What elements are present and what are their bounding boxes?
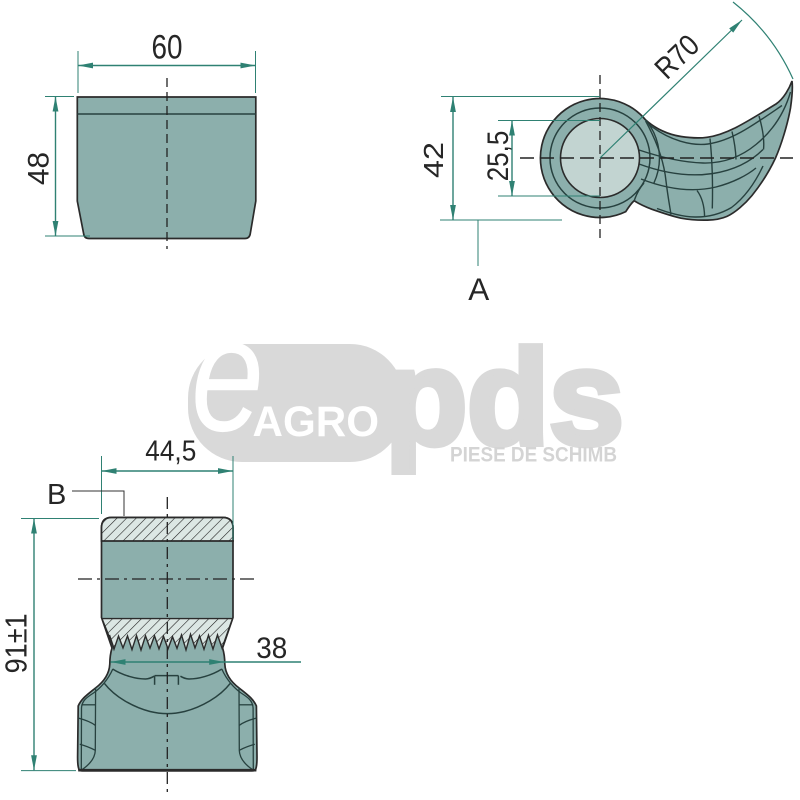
svg-text:R70: R70 — [649, 29, 706, 86]
svg-text:PIESE DE SCHIMB: PIESE DE SCHIMB — [450, 444, 617, 467]
svg-text:48: 48 — [23, 152, 56, 185]
svg-text:38: 38 — [256, 632, 287, 665]
svg-text:A: A — [468, 271, 489, 307]
svg-text:60: 60 — [152, 29, 183, 67]
svg-text:AGRO: AGRO — [253, 398, 380, 446]
svg-text:44,5: 44,5 — [145, 436, 196, 468]
svg-text:B: B — [47, 479, 66, 511]
svg-text:25,5: 25,5 — [482, 131, 515, 182]
svg-text:91±1: 91±1 — [0, 613, 34, 673]
svg-text:42: 42 — [418, 142, 449, 178]
